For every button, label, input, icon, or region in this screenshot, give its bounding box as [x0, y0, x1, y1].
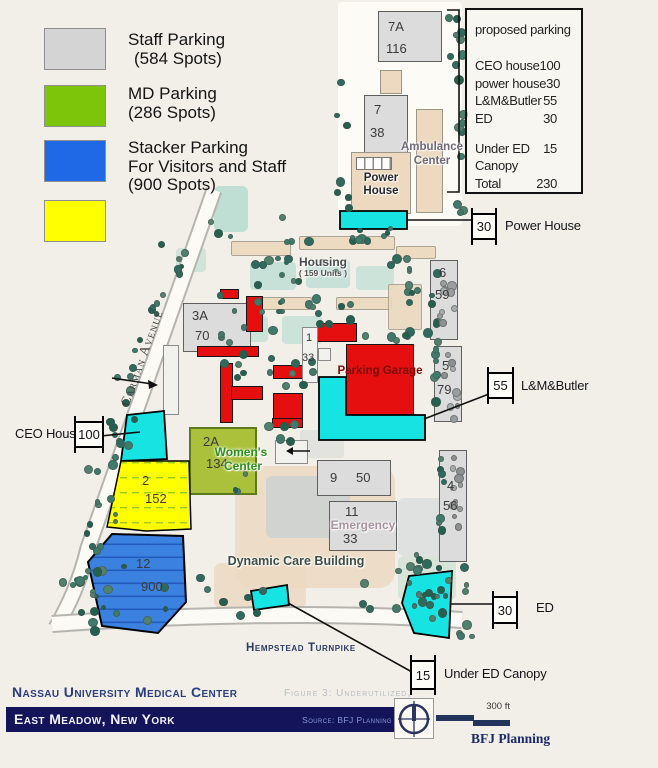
tree-icon — [84, 530, 91, 537]
building-11-number: 11 — [345, 504, 359, 519]
tree-icon — [434, 319, 439, 324]
tree-icon — [160, 292, 167, 299]
scale-bar — [436, 715, 474, 721]
tree-icon — [87, 521, 94, 528]
callout-ed-box: 30 — [492, 596, 518, 624]
brand-logo: BFJ Planning — [471, 731, 550, 747]
tree-icon — [438, 526, 446, 534]
tree-icon — [113, 519, 118, 524]
tree-icon — [208, 219, 214, 225]
tree-icon — [433, 371, 440, 378]
table-row: Total230 — [475, 176, 557, 191]
strip-5-number: 5 — [442, 358, 449, 373]
tree-icon — [235, 361, 242, 368]
building-11-spots: 33 — [343, 531, 357, 546]
ground-patch — [396, 246, 436, 259]
tree-icon — [304, 237, 313, 246]
tree-icon — [355, 236, 363, 244]
building-9 — [317, 460, 391, 496]
building-7a-number: 7A — [388, 19, 404, 34]
callout-ceo-box: 100 — [74, 421, 104, 448]
tree-icon — [264, 422, 274, 432]
tree-icon — [219, 598, 227, 606]
legend-label-md: MD Parking (286 Spots) — [128, 85, 217, 122]
tree-icon — [316, 320, 324, 328]
tree-icon — [434, 338, 442, 346]
tree-icon — [217, 292, 223, 298]
callout-power-house-label: Power House — [505, 218, 581, 233]
tree-icon — [90, 626, 100, 636]
parking-garage-building — [346, 344, 414, 415]
womens-center-label-line1: Women's — [210, 445, 272, 459]
tree-icon — [460, 563, 469, 572]
tree-icon — [338, 303, 344, 309]
parking-dot — [447, 403, 455, 411]
legend-label-staff: Staff Parking (584 Spots) — [128, 31, 225, 68]
tree-icon — [362, 332, 370, 340]
tree-icon — [325, 320, 333, 328]
building-3a-number: 3A — [192, 308, 208, 323]
womens-center-label-line2: Center — [216, 459, 270, 473]
strip-5-spots: 79 — [437, 382, 451, 397]
parking-dot — [439, 319, 446, 326]
callout-lmb-box: 55 — [487, 372, 514, 399]
tree-icon — [240, 370, 246, 376]
tree-icon — [214, 229, 223, 238]
tree-icon — [343, 122, 350, 129]
tree-icon — [337, 79, 344, 86]
tree-icon — [112, 454, 119, 461]
tree-icon — [385, 230, 390, 235]
hospital-building — [273, 365, 303, 379]
tree-icon — [366, 605, 374, 613]
tree-icon — [268, 326, 278, 336]
callout-power-house-box: 30 — [471, 213, 497, 240]
campus-parking-map: 7A 116 7 38 3A 70 6 59 5 79 4 56 1 33 9 … — [0, 0, 658, 768]
tree-icon — [395, 568, 401, 574]
emergency-label: Emergency — [330, 518, 396, 532]
parking-dot — [455, 403, 460, 408]
tree-icon — [114, 374, 121, 381]
tree-icon — [158, 241, 165, 248]
tree-icon — [436, 520, 442, 526]
callout-ceo-label: CEO House — [15, 426, 83, 441]
ambulance-center-label-line2: Center — [395, 155, 469, 167]
tree-icon — [447, 53, 454, 60]
tree-icon — [95, 499, 100, 504]
building-9-spots: 50 — [356, 470, 370, 485]
tree-icon — [108, 460, 118, 470]
hospital-building — [197, 346, 259, 357]
footer-source: Source: BFJ Planning — [300, 715, 392, 725]
tree-icon — [131, 416, 138, 423]
small-structure — [380, 70, 402, 94]
tree-icon — [453, 32, 459, 38]
tree-icon — [431, 397, 441, 407]
legend-swatch-stacker — [44, 140, 106, 182]
carman-parking-strip — [163, 345, 179, 415]
tree-icon — [268, 355, 275, 362]
table-row: power house30 — [475, 76, 557, 91]
tree-icon — [346, 315, 356, 325]
tree-icon — [422, 559, 431, 568]
tree-icon — [124, 441, 133, 450]
legend-swatch-staff — [44, 28, 106, 70]
tree-icon — [290, 420, 299, 429]
tree-icon — [113, 512, 118, 517]
lot-yellow-spots: 152 — [145, 491, 167, 506]
ground-patch — [231, 241, 291, 256]
tree-icon — [334, 113, 339, 118]
tree-icon — [253, 609, 261, 617]
proposed-parking-title: proposed parking — [475, 22, 571, 37]
tree-icon — [406, 299, 413, 306]
tree-icon — [143, 616, 152, 625]
tree-icon — [280, 422, 289, 431]
tree-icon — [336, 177, 345, 186]
tree-icon — [174, 265, 182, 273]
tree-icon — [259, 309, 265, 315]
parking-dot — [448, 359, 455, 366]
tree-icon — [406, 562, 415, 571]
strip-6-number: 6 — [439, 265, 446, 280]
callout-lmb-label: L&M&Butler — [521, 378, 588, 393]
tree-icon — [267, 369, 274, 376]
lot-blue-number: 12 — [136, 556, 150, 571]
tree-icon — [90, 607, 99, 616]
parking-garage-label: Parking Garage — [328, 365, 432, 377]
tree-icon — [312, 294, 321, 303]
tree-icon — [426, 601, 434, 609]
tree-icon — [113, 610, 120, 617]
parking-dot — [451, 305, 458, 312]
carman-avenue-label: Carman Avenue — [114, 299, 170, 417]
tree-icon — [462, 588, 469, 595]
tree-icon — [360, 579, 368, 587]
tree-icon — [228, 234, 233, 239]
tree-icon — [163, 606, 168, 611]
tree-icon — [423, 328, 433, 338]
proposed-parking-table: proposed parking CEO house100 power hous… — [465, 8, 583, 194]
ceo-callout-line — [101, 432, 140, 436]
tree-icon — [334, 189, 341, 196]
parking-dot — [439, 309, 445, 315]
tree-icon — [454, 75, 464, 85]
dynamic-care-label: Dynamic Care Building — [218, 554, 374, 568]
tree-icon — [196, 574, 205, 583]
parking-dot — [454, 474, 463, 483]
power-house-label-line2: House — [351, 185, 411, 197]
table-row: Under ED15 — [475, 141, 557, 156]
tree-icon — [241, 324, 248, 331]
ambulance-center-label-line1: Ambulance — [395, 141, 469, 153]
tree-icon — [259, 261, 267, 269]
callout-under-ed-box: 15 — [410, 660, 436, 690]
tree-icon — [392, 604, 401, 613]
tree-icon — [204, 586, 211, 593]
tree-icon — [405, 281, 414, 290]
tree-icon — [236, 611, 245, 620]
tree-icon — [441, 479, 447, 485]
tree-icon — [387, 261, 395, 269]
building-7-spots: 38 — [370, 125, 384, 140]
tree-icon — [402, 332, 410, 340]
callout-under-ed-label: Under ED Canopy — [444, 666, 547, 681]
ground-patch — [214, 563, 306, 609]
tree-icon — [254, 281, 261, 288]
strip-4-spots: 56 — [443, 498, 457, 513]
figure-caption: Figure 3: Underutilized, — [284, 688, 411, 699]
tree-icon — [101, 605, 106, 610]
tree-icon — [59, 578, 68, 587]
hempstead-turnpike-label: Hempstead Turnpike — [246, 642, 352, 654]
tree-icon — [181, 249, 189, 257]
tree-icon — [284, 239, 290, 245]
building-7a-spots: 116 — [386, 41, 407, 56]
scale-label: 300 ft — [466, 701, 510, 712]
tree-icon — [393, 337, 400, 344]
tree-icon — [234, 374, 241, 381]
tree-icon — [275, 256, 281, 262]
tree-icon — [443, 593, 448, 598]
housing-units-label: ( 159 Units ) — [281, 268, 365, 278]
tree-icon — [407, 580, 412, 585]
tree-icon — [220, 359, 229, 368]
tree-icon — [436, 565, 441, 570]
table-row: Canopy — [475, 158, 557, 173]
tree-icon — [84, 465, 93, 474]
tree-icon — [457, 632, 465, 640]
tree-icon — [279, 214, 286, 221]
tree-icon — [276, 434, 286, 444]
tree-icon — [244, 594, 252, 602]
tree-icon — [429, 293, 435, 299]
tree-icon — [103, 585, 113, 595]
under-ed-callout-line — [288, 603, 412, 672]
compass-icon — [394, 698, 434, 739]
tree-icon — [226, 339, 233, 346]
tree-icon — [282, 382, 290, 390]
lot-ceo-house — [121, 411, 167, 461]
housing-label: Housing — [281, 255, 365, 269]
tree-icon — [453, 15, 461, 23]
power-house-label-line1: Power — [351, 172, 411, 184]
tree-icon — [239, 350, 249, 360]
tree-icon — [418, 597, 427, 606]
tree-icon — [350, 235, 355, 240]
tree-icon — [310, 304, 315, 309]
building-1-spots: 33 — [302, 352, 314, 364]
tree-icon — [75, 576, 85, 586]
arrow-head-icon — [148, 380, 158, 389]
hospital-building — [231, 386, 263, 400]
footer-title: Nassau University Medical Center — [12, 684, 237, 700]
tree-icon — [276, 309, 282, 315]
parking-dot — [455, 523, 463, 531]
callout-ed-label: ED — [536, 600, 554, 615]
tree-icon — [280, 298, 285, 303]
legend-label-stacker: Stacker Parking For Visitors and Staff (… — [128, 139, 286, 195]
tree-icon — [70, 582, 76, 588]
scale-bar — [473, 720, 510, 726]
tree-icon — [433, 346, 439, 352]
tree-icon — [429, 615, 436, 622]
footer-subtitle: East Meadow, New York — [14, 711, 175, 727]
table-row: L&M&Butler55 — [475, 93, 557, 108]
parking-dot — [458, 482, 463, 487]
tree-icon — [403, 255, 411, 263]
building-7-number: 7 — [374, 102, 381, 117]
lot-blue-spots: 900 — [141, 579, 163, 594]
tree-icon — [462, 620, 471, 629]
tree-icon — [233, 487, 239, 493]
tree-icon — [89, 543, 95, 549]
table-row: ED30 — [475, 111, 557, 126]
tree-icon — [416, 556, 423, 563]
tree-icon — [469, 634, 475, 640]
lot-yellow-number: 2 — [142, 473, 149, 488]
small-building — [318, 348, 331, 361]
tree-icon — [121, 564, 126, 569]
tree-icon — [107, 495, 115, 503]
strip-6-spots: 59 — [435, 287, 449, 302]
building-9-number: 9 — [330, 470, 337, 485]
parking-dot — [441, 372, 447, 378]
tree-icon — [438, 608, 448, 618]
table-row: CEO house100 — [475, 58, 557, 73]
strip-4-number: 4 — [447, 478, 454, 493]
tree-icon — [85, 568, 91, 574]
tree-icon — [345, 204, 353, 212]
tree-icon — [94, 468, 101, 475]
tree-icon — [315, 310, 322, 317]
power-house-vents — [356, 157, 392, 170]
building-1-number: 1 — [306, 332, 312, 344]
parking-dot — [450, 415, 458, 423]
tree-icon — [457, 209, 464, 216]
tree-icon — [412, 603, 418, 609]
tree-icon — [299, 381, 307, 389]
tree-icon — [78, 609, 85, 616]
legend-swatch-yellow — [44, 200, 106, 242]
tree-icon — [357, 228, 362, 233]
building-3a-spots: 70 — [195, 328, 209, 343]
legend-swatch-md — [44, 85, 106, 127]
